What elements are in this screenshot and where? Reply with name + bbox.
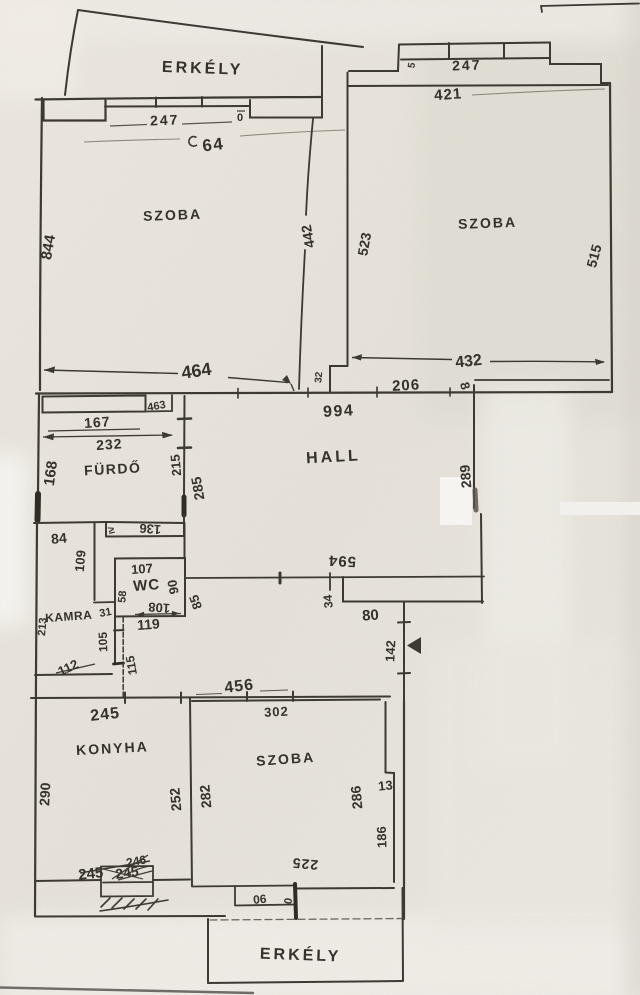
svg-text:168: 168: [41, 460, 61, 487]
svg-text:WC: WC: [133, 576, 161, 595]
svg-text:186: 186: [374, 826, 390, 848]
svg-text:64: 64: [201, 134, 225, 156]
svg-text:142: 142: [382, 640, 398, 662]
svg-text:31: 31: [98, 606, 112, 620]
svg-text:994: 994: [323, 402, 355, 421]
svg-text:215: 215: [167, 454, 184, 477]
svg-text:432: 432: [454, 352, 482, 372]
svg-text:290: 290: [36, 782, 53, 806]
svg-text:167: 167: [84, 413, 111, 431]
svg-text:0: 0: [237, 112, 243, 124]
svg-text:213: 213: [36, 617, 50, 636]
svg-text:06: 06: [253, 892, 268, 907]
svg-text:32: 32: [313, 371, 325, 383]
svg-text:84: 84: [50, 530, 67, 547]
svg-text:136: 136: [139, 521, 162, 537]
svg-text:SZOBA: SZOBA: [143, 206, 203, 224]
svg-text:90: 90: [164, 579, 181, 596]
svg-text:247: 247: [452, 57, 482, 74]
svg-text:13: 13: [377, 777, 393, 793]
svg-text:456: 456: [224, 676, 256, 696]
svg-text:107: 107: [131, 560, 154, 576]
svg-text:119: 119: [137, 615, 161, 633]
svg-text:245: 245: [90, 705, 121, 725]
svg-text:HALL: HALL: [306, 447, 361, 467]
svg-text:282: 282: [196, 784, 214, 809]
svg-text:109: 109: [72, 550, 89, 573]
svg-text:206: 206: [392, 376, 421, 394]
svg-text:105: 105: [96, 631, 111, 652]
svg-text:289: 289: [456, 464, 474, 489]
svg-text:58: 58: [116, 590, 129, 603]
svg-text:FÜRDŐ: FÜRDŐ: [84, 458, 142, 478]
svg-text:464: 464: [180, 359, 213, 383]
svg-text:302: 302: [264, 704, 289, 720]
svg-text:SZOBA: SZOBA: [458, 214, 518, 232]
svg-text:232: 232: [96, 435, 123, 453]
svg-text:80: 80: [362, 607, 380, 625]
svg-text:247: 247: [150, 111, 180, 128]
svg-text:594: 594: [328, 551, 357, 569]
svg-text:286: 286: [347, 785, 365, 810]
svg-text:421: 421: [434, 85, 463, 104]
svg-text:245: 245: [77, 864, 104, 884]
svg-text:225: 225: [291, 855, 319, 873]
svg-text:34: 34: [321, 594, 336, 609]
svg-text:252: 252: [166, 787, 184, 812]
